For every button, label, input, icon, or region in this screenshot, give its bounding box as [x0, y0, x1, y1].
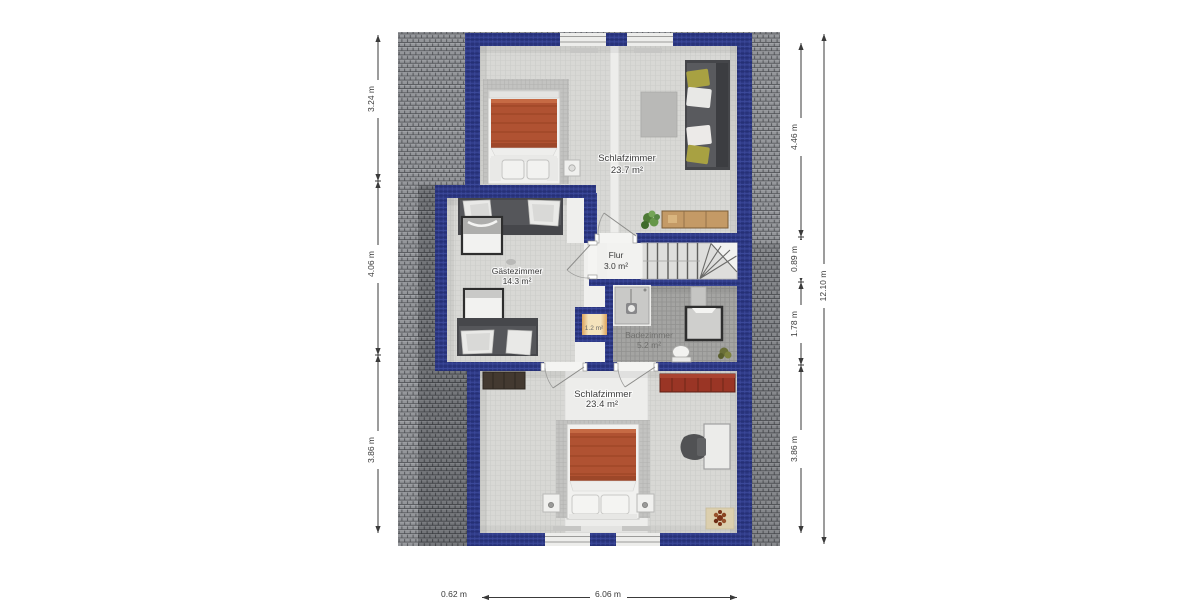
svg-text:23.4 m²: 23.4 m²: [586, 399, 618, 410]
svg-text:Schlafzimmer: Schlafzimmer: [598, 153, 656, 164]
svg-text:5.2 m²: 5.2 m²: [637, 340, 661, 350]
svg-text:1.78 m: 1.78 m: [789, 311, 799, 337]
svg-text:14.3 m²: 14.3 m²: [503, 276, 532, 286]
svg-text:0.89 m: 0.89 m: [789, 246, 799, 272]
svg-text:4.06 m: 4.06 m: [366, 251, 376, 277]
svg-text:3.24 m: 3.24 m: [366, 86, 376, 112]
svg-text:3.86 m: 3.86 m: [789, 436, 799, 462]
svg-text:0.62 m: 0.62 m: [441, 589, 467, 599]
svg-text:1.2 m²: 1.2 m²: [585, 325, 604, 332]
svg-text:3.0 m²: 3.0 m²: [604, 261, 628, 271]
svg-text:Flur: Flur: [609, 250, 624, 260]
svg-text:4.46 m: 4.46 m: [789, 124, 799, 150]
svg-text:Badezimmer: Badezimmer: [625, 330, 673, 340]
svg-text:Gästezimmer: Gästezimmer: [492, 266, 543, 276]
svg-text:12.10 m: 12.10 m: [818, 271, 828, 302]
svg-text:6.06 m: 6.06 m: [595, 589, 621, 599]
svg-text:3.86 m: 3.86 m: [366, 437, 376, 463]
svg-text:23.7 m²: 23.7 m²: [611, 165, 643, 176]
